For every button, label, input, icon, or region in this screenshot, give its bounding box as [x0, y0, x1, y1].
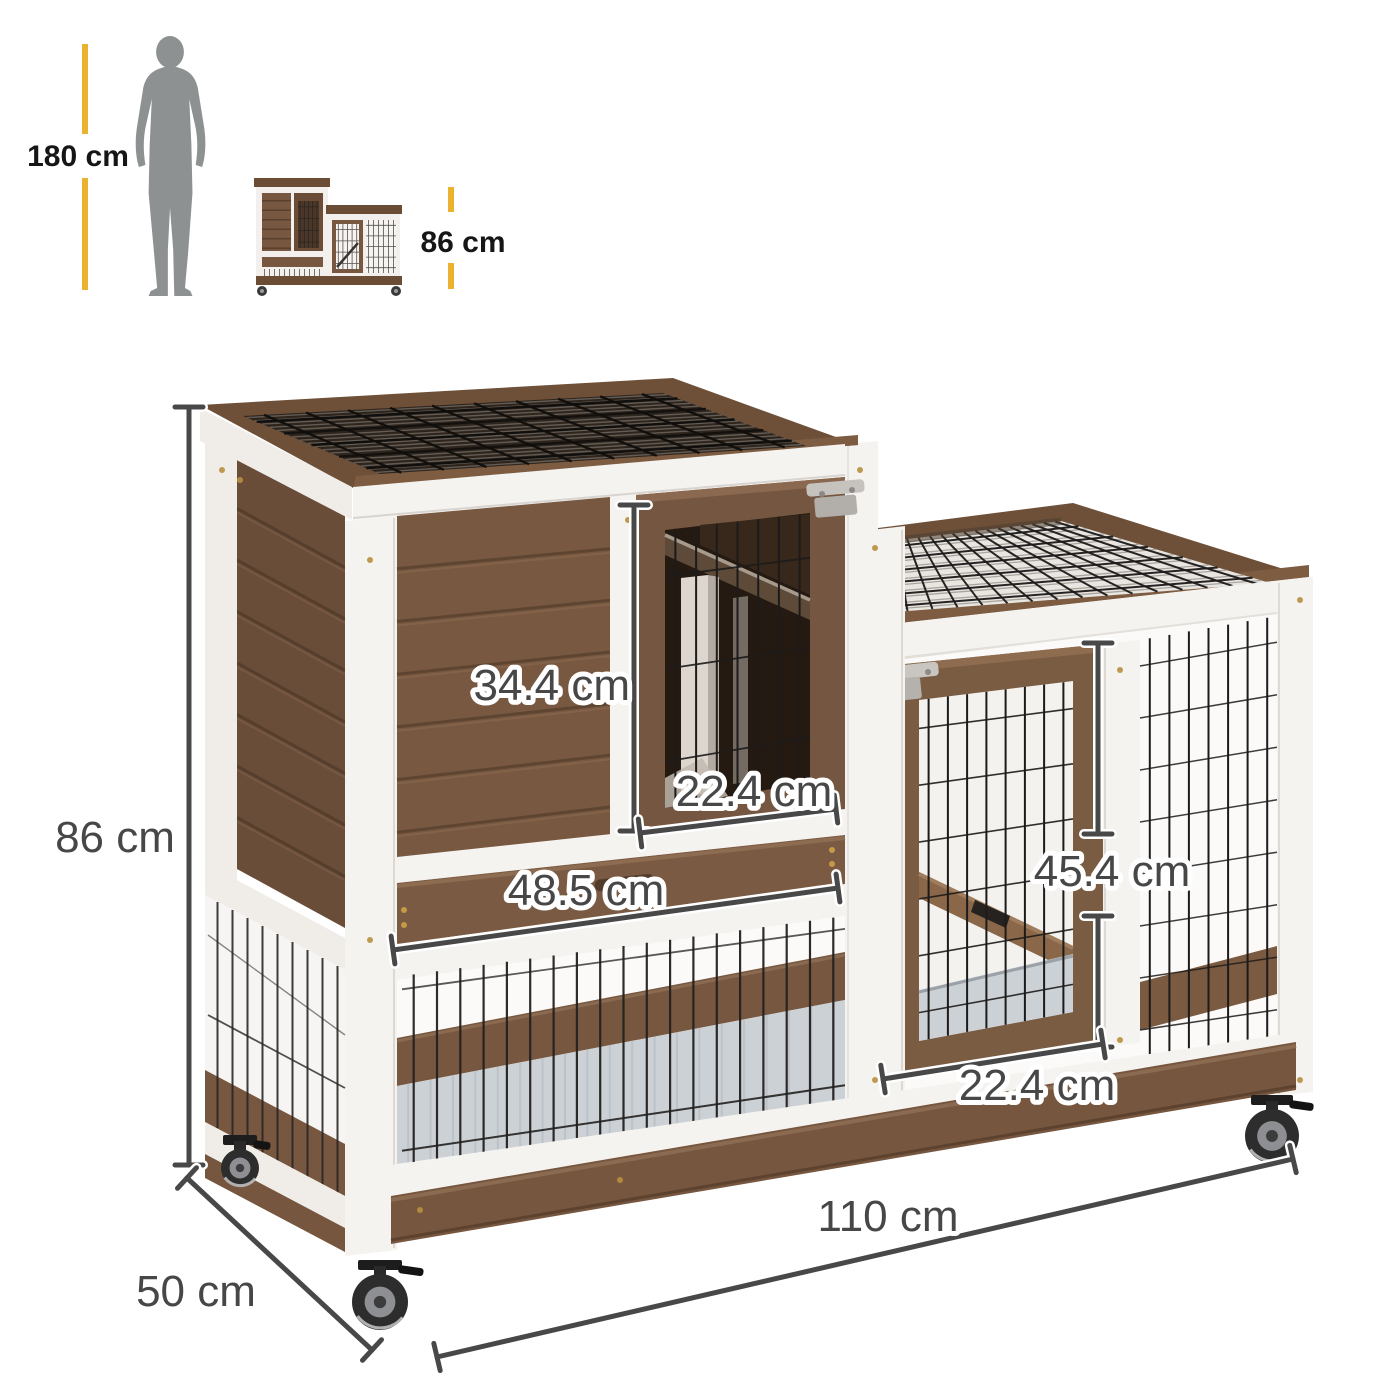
svg-text:50 cm: 50 cm [136, 1267, 256, 1316]
svg-text:48.5 cm: 48.5 cm [508, 866, 665, 915]
svg-text:110 cm: 110 cm [817, 1192, 958, 1241]
svg-text:45.4 cm: 45.4 cm [1034, 847, 1191, 896]
svg-text:22.4 cm: 22.4 cm [676, 767, 833, 816]
svg-text:86 cm: 86 cm [420, 226, 505, 259]
svg-text:180 cm: 180 cm [27, 140, 129, 173]
svg-text:34.4 cm: 34.4 cm [473, 661, 630, 710]
svg-text:22.4 cm: 22.4 cm [959, 1061, 1116, 1110]
svg-text:86 cm: 86 cm [55, 813, 175, 862]
